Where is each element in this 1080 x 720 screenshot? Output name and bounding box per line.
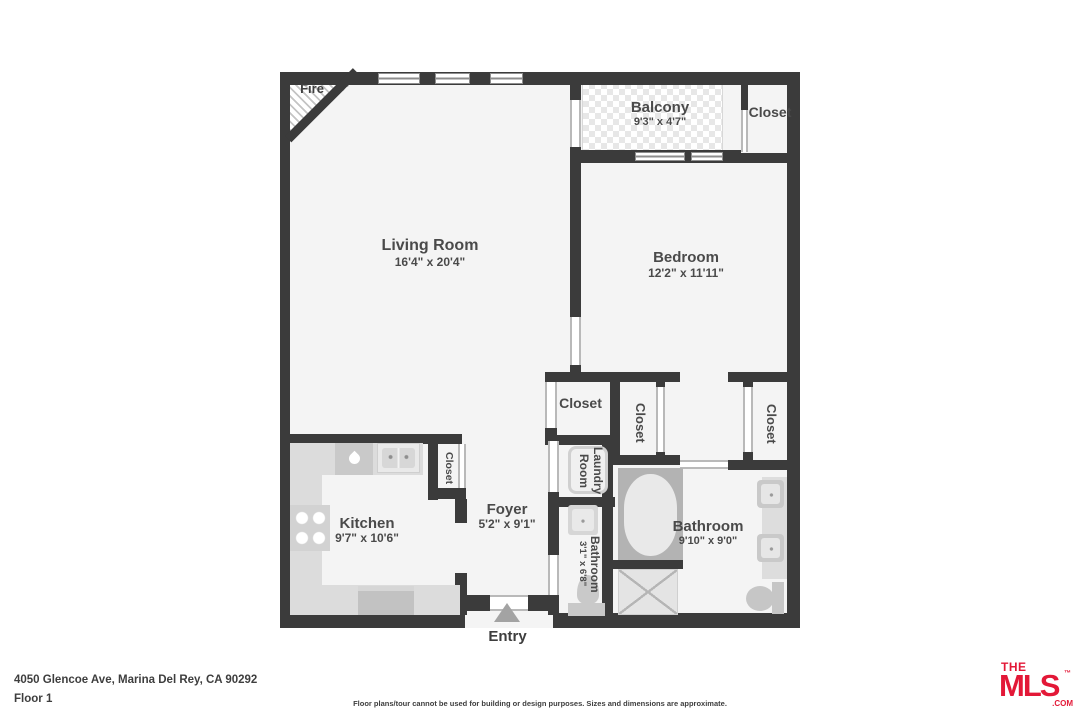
laundry-line1: Laundry	[591, 440, 605, 502]
balcony-label: Balcony	[610, 99, 710, 116]
small-bathroom-name: Bathroom	[588, 514, 602, 614]
bedroom-door-opening	[570, 317, 581, 365]
logo-com: .COM	[1052, 699, 1073, 708]
fireplace-label: Fire	[290, 82, 334, 97]
range-icon	[358, 586, 414, 615]
bathroom-dims: 9'10" x 9'0"	[648, 535, 768, 548]
small-bathroom-dims: 3'1" x 6'8"	[577, 514, 588, 614]
kitchen-label: Kitchen	[307, 515, 427, 532]
wall	[570, 85, 581, 100]
small-bathroom-label: Bathroom 3'1" x 6'8"	[572, 514, 602, 614]
entry-arrow-icon	[494, 603, 520, 622]
wall	[741, 153, 800, 163]
wall	[280, 72, 290, 628]
wall	[570, 147, 581, 317]
living-room-label: Living Room	[350, 237, 510, 255]
bathroom-door-threshold	[680, 460, 728, 469]
bathroom-label: Bathroom	[648, 518, 768, 535]
wall	[743, 372, 753, 387]
logo-mls: MLS	[999, 668, 1058, 704]
bedroom-label: Bedroom	[616, 249, 756, 266]
disclaimer-text: Floor plans/tour cannot be used for buil…	[280, 699, 800, 708]
floor-plan: Fire Living Room 16'4" x 20'4" Bedroom 1…	[280, 72, 800, 628]
closet-label: Closet	[439, 444, 455, 492]
wall	[656, 372, 665, 387]
closet-label: Closet	[630, 384, 648, 462]
wall	[728, 372, 800, 382]
closet-door	[743, 387, 753, 452]
floor-number-text: Floor 1	[14, 693, 52, 705]
window	[490, 73, 523, 84]
wall	[548, 595, 559, 615]
kitchen-dims: 9'7" x 10'6"	[307, 532, 427, 546]
bathroom-small-door	[548, 555, 559, 595]
dishwasher-icon	[335, 443, 373, 475]
balcony-dims: 9'3" x 4'7"	[610, 116, 710, 129]
laundry-line2: Room	[577, 440, 591, 502]
wall	[743, 452, 753, 460]
foyer-dims: 5'2" x 9'1"	[457, 518, 557, 532]
window	[378, 73, 420, 84]
closet-door	[458, 444, 466, 489]
entry-label: Entry	[465, 628, 550, 645]
toilet-icon	[746, 586, 774, 611]
closet-door	[656, 387, 665, 452]
balcony-door	[570, 100, 581, 147]
window	[635, 152, 685, 161]
closet-label: Closet	[761, 384, 779, 464]
closet-label: Closet	[740, 104, 800, 120]
wall	[613, 560, 683, 569]
living-room-dims: 16'4" x 20'4"	[350, 256, 510, 270]
floor-plan-page: { "plan": { "fire_label": "Fire", "entry…	[0, 0, 1080, 720]
closet-label: Closet	[553, 395, 608, 411]
window	[435, 73, 470, 84]
bathtub-icon	[618, 468, 683, 562]
bedroom-dims: 12'2" x 11'11"	[616, 267, 756, 281]
laundry-room-label: Laundry Room	[575, 440, 605, 502]
toilet-tank	[772, 582, 784, 614]
wall	[465, 595, 490, 611]
window	[691, 152, 723, 161]
shower-icon	[618, 569, 678, 615]
laundry-door	[548, 441, 559, 492]
foyer-label: Foyer	[457, 501, 557, 518]
themls-logo: THE MLS ™ .COM	[993, 658, 1075, 714]
vanity-sink-icon	[757, 480, 784, 508]
address-text: 4050 Glencoe Ave, Marina Del Rey, CA 902…	[14, 674, 257, 686]
logo-tm: ™	[1064, 670, 1071, 677]
wall	[280, 613, 465, 628]
kitchen-sink-icon	[377, 443, 420, 473]
